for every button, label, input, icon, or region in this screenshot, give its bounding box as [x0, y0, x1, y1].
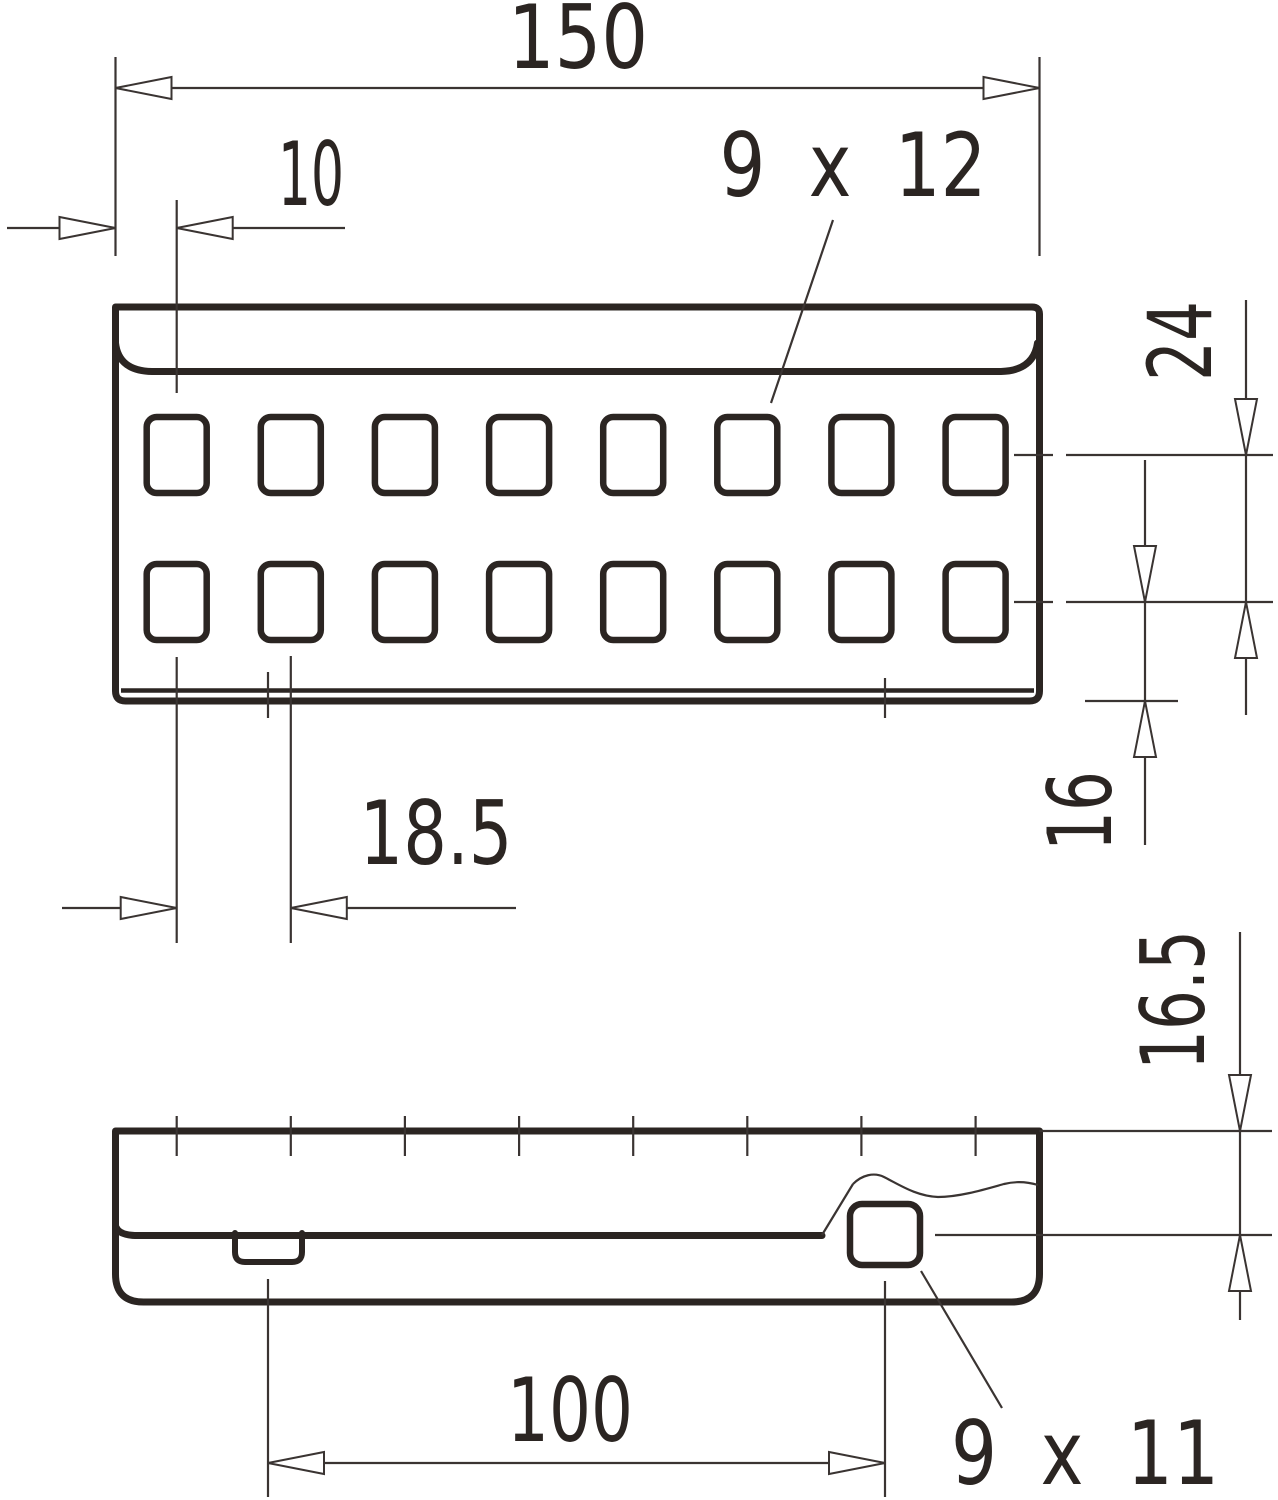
arrowhead-down: [1229, 1075, 1251, 1131]
slot-hole-r2c3: [375, 564, 435, 640]
dim-row-to-bottom: 16: [1029, 460, 1178, 851]
top-view-outline: [116, 307, 1040, 701]
arrowhead-left: [60, 217, 116, 239]
drawing-canvas: 150 10 9 x 12 24 16: [0, 0, 1278, 1500]
arrowhead-right: [177, 217, 233, 239]
dim-slot-to-hole: 100: [268, 1279, 885, 1497]
dim-row-pitch: 24: [1014, 300, 1273, 715]
slot-hole-r1c5: [603, 417, 663, 493]
slot-hole-r2c6: [717, 564, 777, 640]
arrowhead-up: [1134, 701, 1156, 757]
slot-hole-r2c1: [147, 564, 207, 640]
dim-row-pitch-label: 24: [1129, 301, 1232, 381]
slot-hole-r2c7: [831, 564, 891, 640]
arrowhead-up: [1229, 1235, 1251, 1291]
slot-hole-r2c2: [261, 564, 321, 640]
side-view-step-line: [116, 1227, 822, 1236]
side-hole-size-label: 9 x 11: [951, 1402, 1219, 1500]
dim-row-to-bottom-label: 16: [1029, 771, 1132, 851]
side-view-wavy-contour: [853, 1175, 1038, 1197]
arrowhead-right: [291, 897, 347, 919]
side-view-outline: [116, 1131, 1040, 1302]
slot-hole-r2c8: [946, 564, 1006, 640]
dim-overall-length-label: 150: [508, 0, 648, 89]
arrowhead-left: [268, 1452, 324, 1474]
leader-line: [771, 220, 833, 403]
dim-slot-to-hole-label: 100: [507, 1359, 633, 1462]
technical-drawing: 150 10 9 x 12 24 16: [0, 0, 1278, 1500]
arrowhead-up: [1235, 602, 1257, 658]
slot-hole-r1c3: [375, 417, 435, 493]
hole-row-1: [147, 417, 1006, 493]
dim-step-height: 16.5: [935, 930, 1272, 1320]
slot-hole-r2c4: [489, 564, 549, 640]
side-view-hole: [850, 1204, 920, 1265]
slot-hole-r1c4: [489, 417, 549, 493]
dim-hole-pitch-label: 18.5: [360, 782, 513, 885]
slot-hole-r1c8: [946, 417, 1006, 493]
dim-edge-to-first-hole-label: 10: [278, 123, 344, 226]
callout-hole-size: 9 x 12: [720, 114, 987, 403]
slot-hole-r2c5: [603, 564, 663, 640]
hole-row-2: [147, 564, 1006, 640]
arrowhead-down: [1134, 546, 1156, 602]
hole-size-label: 9 x 12: [720, 114, 987, 217]
dim-step-height-label: 16.5: [1122, 930, 1225, 1070]
dim-edge-to-first-hole: 10: [7, 123, 345, 393]
slot-hole-r1c7: [831, 417, 891, 493]
arrowhead-down: [1235, 399, 1257, 455]
side-view: [116, 1116, 1040, 1302]
slot-hole-r1c2: [261, 417, 321, 493]
leader-line: [921, 1271, 1002, 1408]
arrowhead-left: [121, 897, 177, 919]
side-view-column-ticks: [177, 1116, 976, 1156]
arrowhead-right: [829, 1452, 885, 1474]
slot-hole-r1c6: [717, 417, 777, 493]
slot-hole-r1c1: [147, 417, 207, 493]
arrowhead-right: [984, 77, 1040, 99]
top-view-flange-line: [116, 343, 1038, 372]
top-view: [116, 307, 1040, 718]
arrowhead-left: [116, 77, 172, 99]
